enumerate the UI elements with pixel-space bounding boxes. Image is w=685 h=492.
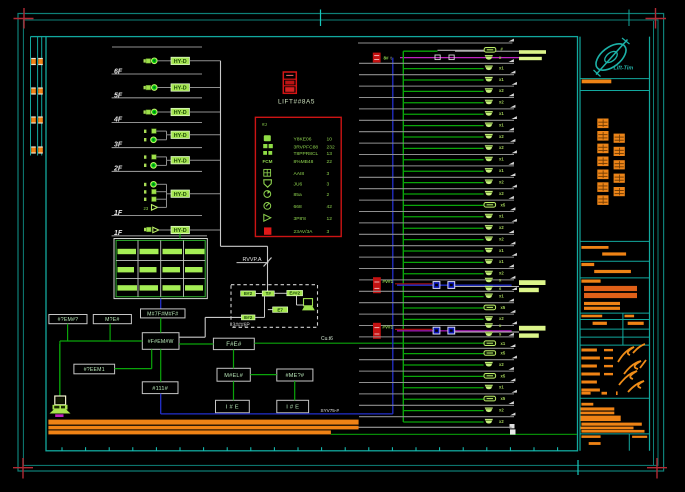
- svg-text:x1: x1: [499, 65, 504, 70]
- svg-text:x2: x2: [499, 145, 504, 150]
- svg-text:JU6: JU6: [294, 181, 303, 187]
- svg-text:x1: x1: [499, 385, 504, 390]
- svg-text:HY-D: HY-D: [174, 192, 187, 198]
- svg-text:I # E: I # E: [286, 405, 299, 411]
- svg-text:232: 232: [327, 144, 335, 150]
- svg-text:85a: 85a: [294, 192, 302, 198]
- svg-text:1F: 1F: [114, 210, 123, 217]
- svg-text:x5: x5: [501, 396, 506, 401]
- svg-text:F#E#: F#E#: [226, 342, 242, 348]
- svg-text:3: 3: [327, 181, 330, 187]
- svg-text:x2: x2: [499, 271, 504, 276]
- svg-text:10: 10: [327, 137, 333, 143]
- svg-text:x2: x2: [499, 88, 504, 93]
- svg-text:x2: x2: [499, 419, 504, 424]
- svg-text:x5: x5: [501, 305, 506, 310]
- svg-text:#?EEM1: #?EEM1: [84, 367, 105, 373]
- svg-text:I # E: I # E: [226, 405, 239, 411]
- svg-text:x5: x5: [501, 202, 506, 207]
- svg-text:3F: 3F: [114, 141, 123, 148]
- svg-text:#?EM#?: #?EM#?: [58, 317, 79, 323]
- svg-text:x2: x2: [499, 134, 504, 139]
- svg-text:HY-D: HY-D: [174, 86, 187, 92]
- svg-text:1F: 1F: [114, 230, 123, 237]
- svg-text:M#EL#: M#EL#: [224, 373, 243, 379]
- svg-text:x1: x1: [499, 293, 504, 298]
- svg-text:M#7F#M#F#: M#7F#M#F#: [147, 312, 178, 318]
- svg-text:13: 13: [327, 151, 333, 157]
- svg-text:x1: x1: [499, 259, 504, 264]
- svg-text:E#2: E#2: [244, 315, 253, 320]
- svg-text:x2: x2: [499, 225, 504, 230]
- svg-text:HY-D: HY-D: [174, 59, 187, 65]
- svg-text:Lift-Tim: Lift-Tim: [614, 66, 634, 72]
- svg-text:3###6P: 3###6P: [233, 322, 251, 328]
- svg-text:3P8'8: 3P8'8: [294, 216, 307, 222]
- svg-text:HY-D: HY-D: [174, 133, 187, 139]
- svg-text:3: 3: [327, 229, 330, 235]
- svg-text:x2: x2: [499, 179, 504, 184]
- svg-text:x2: x2: [499, 407, 504, 412]
- svg-text:12: 12: [327, 216, 333, 222]
- svg-text:4F: 4F: [113, 116, 123, 123]
- svg-text:x2: x2: [499, 316, 504, 321]
- svg-text:x2: x2: [499, 191, 504, 196]
- svg-text:3: 3: [327, 171, 330, 177]
- svg-text:#F#EM#W: #F#EM#W: [148, 339, 174, 345]
- svg-text:x2: x2: [499, 362, 504, 367]
- svg-text:42: 42: [327, 204, 333, 210]
- svg-text:x1: x1: [501, 341, 506, 346]
- svg-text:x1: x1: [499, 214, 504, 219]
- svg-text:SYV75-#: SYV75-#: [321, 408, 340, 413]
- svg-text:23AV/3A: 23AV/3A: [294, 229, 314, 235]
- svg-text:2F: 2F: [113, 165, 123, 172]
- svg-text:HY-D: HY-D: [174, 158, 187, 164]
- svg-text:LIFT##8A5: LIFT##8A5: [278, 98, 315, 105]
- svg-text:T8PPR8CL: T8PPR8CL: [294, 151, 319, 157]
- svg-text:#V#1: #V#1: [382, 325, 393, 330]
- svg-text:#J: #J: [262, 122, 267, 127]
- svg-text:E##2: E##2: [289, 291, 300, 296]
- svg-text:x1: x1: [499, 122, 504, 127]
- svg-text:3RVPFC88: 3RVPFC88: [294, 144, 319, 150]
- svg-text:6F: 6F: [114, 68, 123, 75]
- svg-text:FCM: FCM: [263, 159, 273, 164]
- svg-text:x2: x2: [499, 100, 504, 105]
- svg-text:x1: x1: [499, 77, 504, 82]
- svg-text:#V#1: #V#1: [382, 279, 393, 284]
- svg-text:22: 22: [327, 159, 333, 165]
- svg-text:HY-D: HY-D: [174, 228, 187, 234]
- svg-text:#ME?#: #ME?#: [285, 373, 304, 379]
- svg-text:#111#: #111#: [152, 386, 168, 392]
- svg-text:x1: x1: [499, 157, 504, 162]
- svg-text:x2: x2: [499, 236, 504, 241]
- svg-text:x1: x1: [499, 168, 504, 173]
- svg-text:8%MB48: 8%MB48: [294, 159, 314, 165]
- svg-text:x5: x5: [501, 373, 506, 378]
- svg-text:T#: T#: [266, 291, 272, 296]
- svg-text:Cu.t6: Cu.t6: [321, 336, 333, 342]
- svg-text:M?E#: M?E#: [105, 317, 119, 323]
- svg-text:5F: 5F: [114, 92, 123, 99]
- svg-text:Y8KE06: Y8KE06: [294, 137, 312, 143]
- svg-text:x5: x5: [501, 351, 506, 356]
- svg-text:HY-D: HY-D: [174, 110, 187, 116]
- svg-text:8#: 8#: [384, 56, 390, 61]
- svg-text:2: 2: [327, 192, 330, 198]
- svg-text:x1: x1: [499, 111, 504, 116]
- svg-text:E7: E7: [277, 307, 283, 312]
- svg-text:AAI8: AAI8: [294, 171, 305, 177]
- svg-text:668: 668: [294, 204, 302, 210]
- svg-text:23: 23: [144, 206, 149, 211]
- svg-text:x1: x1: [499, 248, 504, 253]
- svg-text:E#2: E#2: [244, 291, 253, 296]
